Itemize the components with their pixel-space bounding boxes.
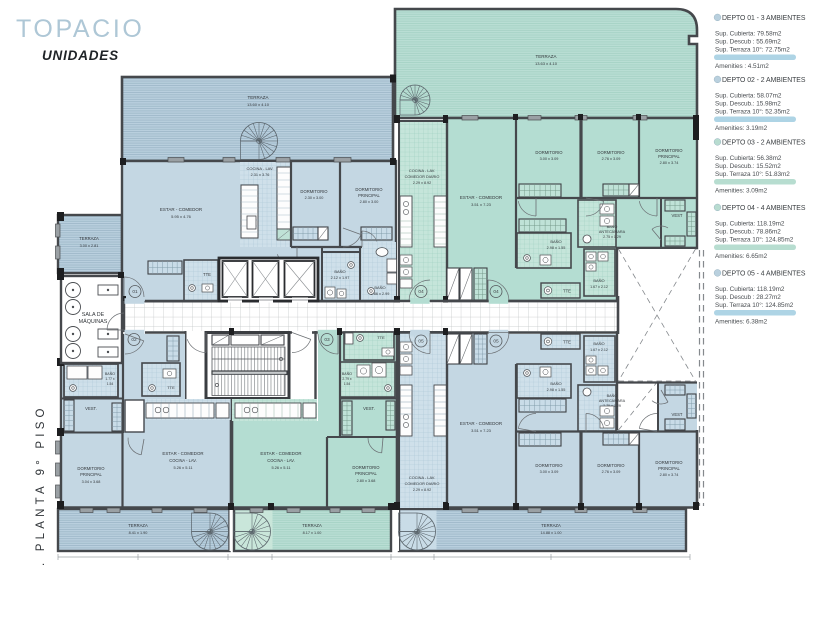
svg-text:PRINCIPAL: PRINCIPAL xyxy=(358,193,380,198)
svg-text:3.51 x 7.23: 3.51 x 7.23 xyxy=(471,202,492,207)
svg-text:Sup. Terraza 10°: 124.85m2: Sup. Terraza 10°: 124.85m2 xyxy=(715,236,794,244)
svg-text:Sup. Cubierta: 58.07m2: Sup. Cubierta: 58.07m2 xyxy=(715,93,782,100)
svg-text:2.29 x 8.92: 2.29 x 8.92 xyxy=(413,488,431,492)
svg-text:COCINA - LAV.: COCINA - LAV. xyxy=(267,458,295,463)
svg-text:ESTAR - COMEDOR: ESTAR - COMEDOR xyxy=(160,207,203,212)
svg-text:DORMITORIO: DORMITORIO xyxy=(597,150,625,155)
svg-text:13.63 x 4.10: 13.63 x 4.10 xyxy=(535,61,558,66)
svg-text:DEPTO 03 - 2 AMBIENTES: DEPTO 03 - 2 AMBIENTES xyxy=(722,140,806,147)
svg-text:COCINA - LAV.: COCINA - LAV. xyxy=(409,475,435,480)
svg-text:COMEDOR DIARIO: COMEDOR DIARIO xyxy=(405,174,440,179)
svg-text:2.80 x 3.74: 2.80 x 3.74 xyxy=(660,161,679,165)
svg-text:8.41 x 1.90: 8.41 x 1.90 xyxy=(129,531,148,535)
svg-text:2.80 x 3.68: 2.80 x 3.68 xyxy=(357,479,376,483)
svg-text:3.00 x 3.09: 3.00 x 3.09 xyxy=(540,470,559,474)
svg-text:04: 04 xyxy=(418,289,424,295)
svg-text:TOPACIO: TOPACIO xyxy=(16,15,144,43)
svg-text:PRINCIPAL: PRINCIPAL xyxy=(80,472,102,477)
svg-text:Sup. Descub.: 15.52m2: Sup. Descub.: 15.52m2 xyxy=(715,163,781,170)
svg-text:TERRAZA: TERRAZA xyxy=(541,523,561,528)
svg-text:UNIDADES: UNIDADES xyxy=(42,48,119,63)
svg-text:ANTECÁMARA: ANTECÁMARA xyxy=(599,230,626,234)
svg-text:VEST: VEST xyxy=(672,412,683,417)
svg-text:Sup. Descub : 28.27m2: Sup. Descub : 28.27m2 xyxy=(715,294,781,301)
svg-text:VEST: VEST xyxy=(672,213,683,218)
svg-text:Sup. Descub : 55.69m2: Sup. Descub : 55.69m2 xyxy=(715,39,781,46)
svg-text:COCINA - LAV.: COCINA - LAV. xyxy=(247,166,274,171)
svg-text:VEST.: VEST. xyxy=(363,406,375,411)
svg-text:3.51 x 7.23: 3.51 x 7.23 xyxy=(471,428,492,433)
svg-text:DEPTO 02 - 2 AMBIENTES: DEPTO 02 - 2 AMBIENTES xyxy=(722,77,806,84)
svg-text:ANTECÁMARA: ANTECÁMARA xyxy=(599,399,626,403)
svg-text:TERRAZA: TERRAZA xyxy=(535,54,556,59)
svg-text:DORMITORIO: DORMITORIO xyxy=(597,463,625,468)
svg-text:. PLANTA 9° PISO: . PLANTA 9° PISO xyxy=(35,404,47,566)
svg-text:DORMITORIO: DORMITORIO xyxy=(355,187,383,192)
svg-text:Sup. Cubierta: 79.58m2: Sup. Cubierta: 79.58m2 xyxy=(715,31,782,38)
svg-text:COMEDOR DIARIO: COMEDOR DIARIO xyxy=(405,481,440,486)
svg-text:2.98 x 1.55: 2.98 x 1.55 xyxy=(547,388,566,392)
svg-text:BAÑO: BAÑO xyxy=(607,393,618,398)
svg-text:Amenities: 3.09m2: Amenities: 3.09m2 xyxy=(715,188,768,195)
svg-text:PRINCIPAL: PRINCIPAL xyxy=(355,471,377,476)
svg-text:Amenities : 4.51m2: Amenities : 4.51m2 xyxy=(715,63,769,70)
svg-text:5.26 x 5.11: 5.26 x 5.11 xyxy=(174,465,193,470)
svg-text:1.54: 1.54 xyxy=(107,382,114,386)
svg-text:TTE: TTE xyxy=(563,340,571,345)
svg-text:1.54: 1.54 xyxy=(344,382,351,386)
svg-text:2.31 x 3.76: 2.31 x 3.76 xyxy=(251,173,270,177)
svg-text:ESTAR - COMEDOR: ESTAR - COMEDOR xyxy=(460,195,503,200)
svg-text:PRINCIPAL: PRINCIPAL xyxy=(658,466,680,471)
svg-text:03: 03 xyxy=(324,337,330,343)
svg-text:1.67 x 2.12: 1.67 x 2.12 xyxy=(590,285,608,289)
svg-text:BAÑO: BAÑO xyxy=(593,278,604,283)
svg-text:COCINA - LAV.: COCINA - LAV. xyxy=(169,458,197,463)
svg-text:DEPTO 04 - 4 AMBIENTES: DEPTO 04 - 4 AMBIENTES xyxy=(722,205,806,212)
svg-text:Sup. Terraza 10°: 124.85m2: Sup. Terraza 10°: 124.85m2 xyxy=(715,301,794,309)
svg-text:ESTAR - COMEDOR: ESTAR - COMEDOR xyxy=(260,451,301,456)
svg-text:BAÑO: BAÑO xyxy=(593,341,604,346)
svg-text:3.00 x 3.09: 3.00 x 3.09 xyxy=(540,157,559,161)
svg-text:2.76 x 3.09: 2.76 x 3.09 xyxy=(602,470,621,474)
svg-text:DEPTO 01 - 3 AMBIENTES: DEPTO 01 - 3 AMBIENTES xyxy=(722,15,806,22)
svg-text:3.04 x 3.68: 3.04 x 3.68 xyxy=(82,480,101,484)
svg-text:Sup. Terraza 10°: 51.83m2: Sup. Terraza 10°: 51.83m2 xyxy=(715,170,790,178)
svg-text:TTE: TTE xyxy=(563,289,571,294)
svg-text:DORMITORIO: DORMITORIO xyxy=(535,463,563,468)
svg-text:Sup. Descub.: 78.86m2: Sup. Descub.: 78.86m2 xyxy=(715,229,781,236)
svg-text:PRINCIPAL: PRINCIPAL xyxy=(658,154,680,159)
svg-text:04: 04 xyxy=(493,289,499,295)
svg-text:3.00 x 2.81: 3.00 x 2.81 xyxy=(80,244,99,248)
svg-text:8.17 x 1.00: 8.17 x 1.00 xyxy=(303,531,322,535)
svg-text:2.29 x 8.92: 2.29 x 8.92 xyxy=(413,181,431,185)
svg-text:Amenities: 6.38m2: Amenities: 6.38m2 xyxy=(715,319,768,326)
svg-text:2.98 x 1.55: 2.98 x 1.55 xyxy=(547,246,566,250)
svg-text:DORMITORIO: DORMITORIO xyxy=(352,465,380,470)
svg-text:COCINA - LAV.: COCINA - LAV. xyxy=(409,168,435,173)
svg-text:MÁQUINAS: MÁQUINAS xyxy=(79,318,108,325)
svg-text:Sup. Terraza 10°: 72.75m2: Sup. Terraza 10°: 72.75m2 xyxy=(715,46,790,54)
svg-text:BAÑO: BAÑO xyxy=(334,269,345,274)
svg-text:ESTAR - COMEDOR: ESTAR - COMEDOR xyxy=(460,421,503,426)
svg-text:2.75 x 1.29: 2.75 x 1.29 xyxy=(603,235,621,239)
svg-text:TERRAZA: TERRAZA xyxy=(247,95,268,100)
svg-text:Sup. Cubierta: 118.19m2: Sup. Cubierta: 118.19m2 xyxy=(715,286,785,293)
svg-text:DORMITORIO: DORMITORIO xyxy=(655,148,683,153)
svg-text:13.60 x 4.10: 13.60 x 4.10 xyxy=(247,102,270,107)
svg-text:Amenities: 3.19m2: Amenities: 3.19m2 xyxy=(715,125,768,132)
svg-text:1.77 x: 1.77 x xyxy=(105,377,115,381)
svg-text:TERRAZA: TERRAZA xyxy=(79,236,99,241)
svg-text:DORMITORIO: DORMITORIO xyxy=(655,460,683,465)
svg-text:BAÑO: BAÑO xyxy=(374,285,385,290)
svg-text:Sup. Cubierta: 118.19m2: Sup. Cubierta: 118.19m2 xyxy=(715,221,785,228)
svg-text:2.79 x: 2.79 x xyxy=(342,377,352,381)
svg-text:BAÑO: BAÑO xyxy=(342,371,352,376)
svg-text:ESTAR - COMEDOR: ESTAR - COMEDOR xyxy=(162,451,203,456)
svg-text:1.67 x 2.12: 1.67 x 2.12 xyxy=(590,348,608,352)
svg-text:TTE: TTE xyxy=(377,335,385,340)
svg-text:BAÑO: BAÑO xyxy=(550,239,561,244)
svg-text:2.80 x 3.74: 2.80 x 3.74 xyxy=(660,473,679,477)
svg-text:05: 05 xyxy=(493,339,499,345)
svg-text:5.26 x 5.11: 5.26 x 5.11 xyxy=(272,465,291,470)
svg-text:DORMITORIO: DORMITORIO xyxy=(77,466,105,471)
svg-text:Amenities: 6.65m2: Amenities: 6.65m2 xyxy=(715,253,768,260)
svg-text:DORMITORIO: DORMITORIO xyxy=(535,150,563,155)
svg-text:5.95 x 4.76: 5.95 x 4.76 xyxy=(171,214,192,219)
svg-text:2.12 x 1.97: 2.12 x 1.97 xyxy=(331,276,350,280)
svg-text:BAÑO: BAÑO xyxy=(105,371,115,376)
svg-text:SALA DE: SALA DE xyxy=(82,312,105,318)
svg-text:DEPTO 05 - 4 AMBIENTES: DEPTO 05 - 4 AMBIENTES xyxy=(722,271,806,278)
svg-text:TERRAZA: TERRAZA xyxy=(302,523,322,528)
svg-text:05: 05 xyxy=(418,339,424,345)
svg-text:2.80 x 3.00: 2.80 x 3.00 xyxy=(360,200,379,204)
svg-text:2.76 x 3.09: 2.76 x 3.09 xyxy=(602,157,621,161)
svg-text:VEST.: VEST. xyxy=(85,406,97,411)
svg-text:Sup. Descub.: 15.98m2: Sup. Descub.: 15.98m2 xyxy=(715,101,781,108)
svg-text:DORMITORIO: DORMITORIO xyxy=(300,189,328,194)
svg-text:01: 01 xyxy=(132,289,138,295)
svg-text:Sup. Cubierta: 56.38m2: Sup. Cubierta: 56.38m2 xyxy=(715,155,782,162)
svg-text:TTE: TTE xyxy=(203,272,211,277)
svg-text:Sup. Terraza 10°: 52.35m2: Sup. Terraza 10°: 52.35m2 xyxy=(715,108,790,116)
svg-text:TERRAZA: TERRAZA xyxy=(128,523,148,528)
svg-text:2.30 x 3.00: 2.30 x 3.00 xyxy=(305,196,324,200)
svg-text:BAÑO: BAÑO xyxy=(550,381,561,386)
svg-text:14.88 x 1.00: 14.88 x 1.00 xyxy=(541,531,562,535)
svg-text:TTE: TTE xyxy=(167,385,175,390)
svg-text:02: 02 xyxy=(131,337,137,343)
